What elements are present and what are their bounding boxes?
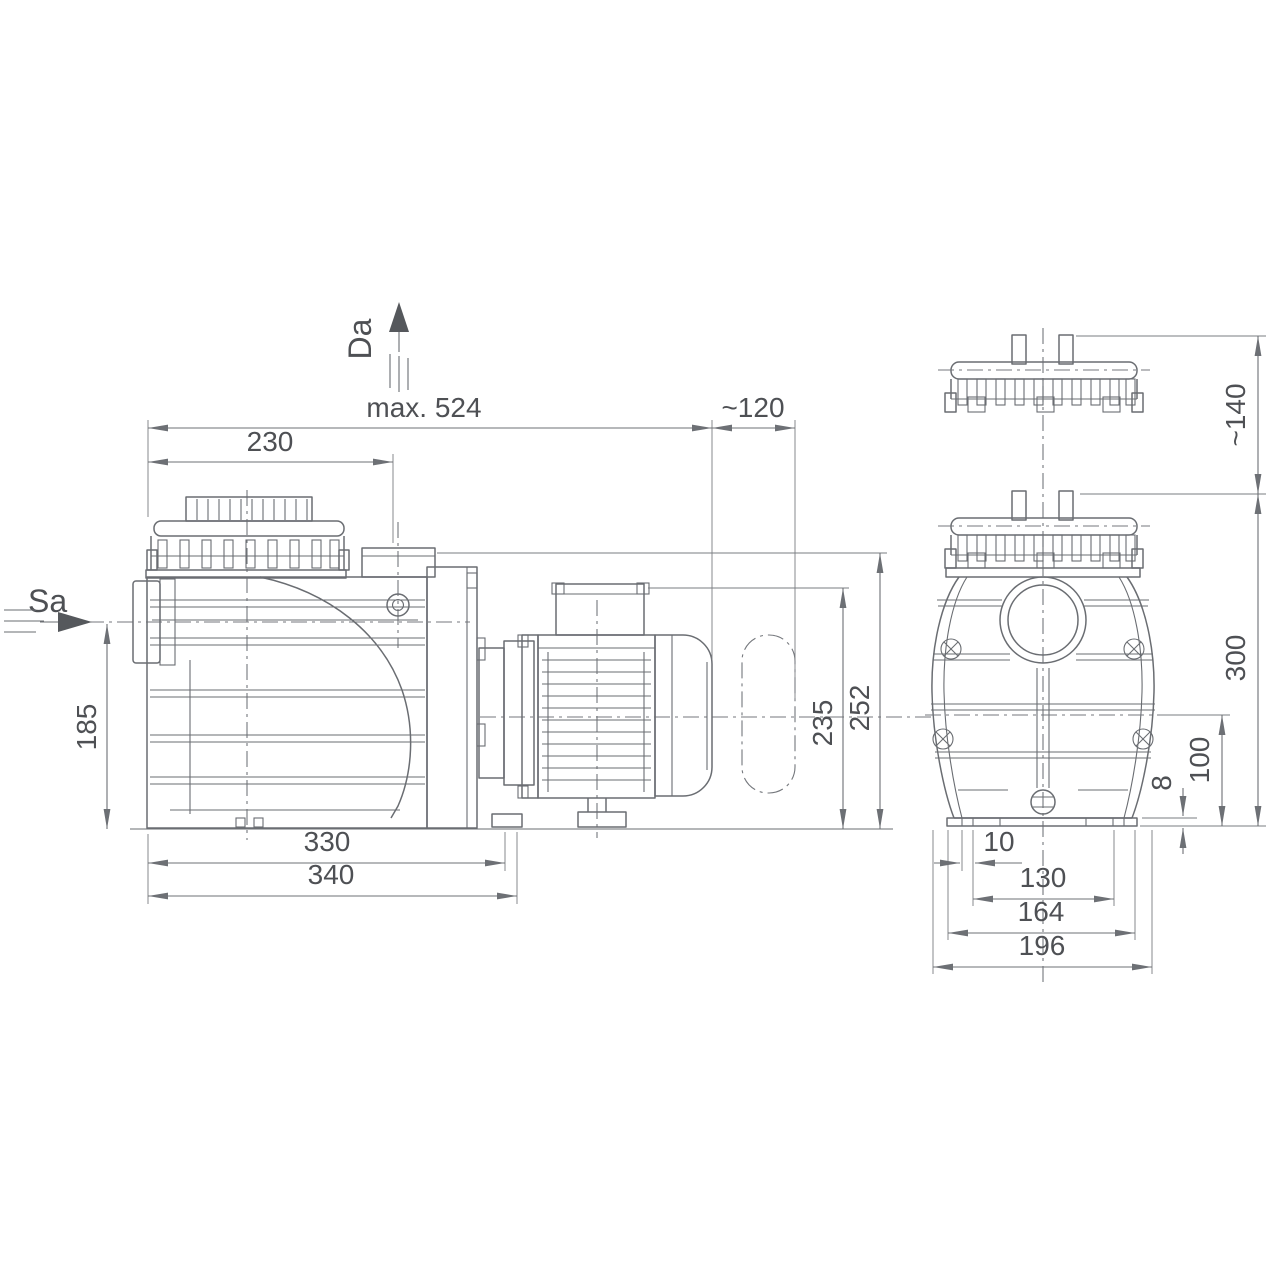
dim-overall-width: 196 — [933, 930, 1152, 967]
svg-text:300: 300 — [1220, 635, 1251, 682]
svg-text:10: 10 — [983, 826, 1014, 857]
strainer-lid-on-body — [938, 491, 1150, 568]
motor-side — [479, 583, 795, 827]
svg-text:330: 330 — [304, 826, 351, 857]
technical-drawing-page: Sa Da — [0, 0, 1280, 1280]
strainer-lid-side — [146, 497, 349, 578]
svg-text:164: 164 — [1018, 896, 1065, 927]
svg-text:130: 130 — [1020, 862, 1067, 893]
side-extension-lines — [148, 420, 887, 904]
pump-drawing-svg: Sa Da — [0, 0, 1280, 1280]
svg-text:196: 196 — [1019, 930, 1066, 961]
motor-bracket — [427, 567, 522, 828]
svg-text:~120: ~120 — [721, 392, 784, 423]
svg-text:185: 185 — [71, 704, 102, 751]
dim-total-height: 252 — [844, 553, 880, 829]
motor-removal-phantom — [742, 635, 795, 793]
dim-slot-width: 10 — [934, 826, 1022, 863]
svg-text:~140: ~140 — [1220, 383, 1251, 446]
svg-text:8: 8 — [1146, 775, 1177, 791]
svg-text:252: 252 — [844, 685, 875, 732]
suction-flow-symbol: Sa — [4, 583, 92, 632]
dim-total-length: max. 524 — [148, 392, 712, 428]
discharge-flow-symbol: Da — [342, 302, 409, 392]
dim-base-width: 164 — [948, 896, 1135, 933]
motor-end-cap — [655, 635, 712, 796]
front-extension-lines — [933, 336, 1266, 974]
svg-text:235: 235 — [807, 700, 838, 747]
terminal-box — [552, 583, 649, 635]
dim-housing-height: 235 — [807, 588, 843, 829]
dim-base-length: 340 — [148, 859, 517, 896]
strainer-lid-front-exploded — [938, 335, 1150, 412]
dim-lid-offset: 230 — [148, 426, 393, 462]
dim-lid-clearance: ~140 — [1220, 336, 1258, 494]
discharge-flow-arrow-icon — [389, 302, 409, 332]
svg-text:230: 230 — [247, 426, 294, 457]
svg-text:340: 340 — [308, 859, 355, 890]
dim-dismantle-clearance: ~120 — [712, 392, 795, 428]
suction-flow-arrow-icon — [58, 612, 92, 632]
pump-body-front — [925, 491, 1165, 826]
svg-text:max. 524: max. 524 — [366, 392, 481, 423]
dim-foot-length: 330 — [148, 826, 505, 863]
pump-front-view: ~140 300 100 8 10 130 164 — [925, 328, 1266, 984]
dim-front-total-height: 300 — [1220, 494, 1258, 826]
dim-suction-height: 185 — [71, 624, 107, 829]
pump-side-view: Sa Da — [4, 302, 932, 904]
pump-housing-side — [133, 548, 435, 828]
side-centerlines — [88, 490, 932, 840]
svg-text:100: 100 — [1184, 737, 1215, 784]
discharge-port-label: Da — [342, 318, 378, 359]
dim-mount-height: 100 — [1184, 715, 1222, 826]
